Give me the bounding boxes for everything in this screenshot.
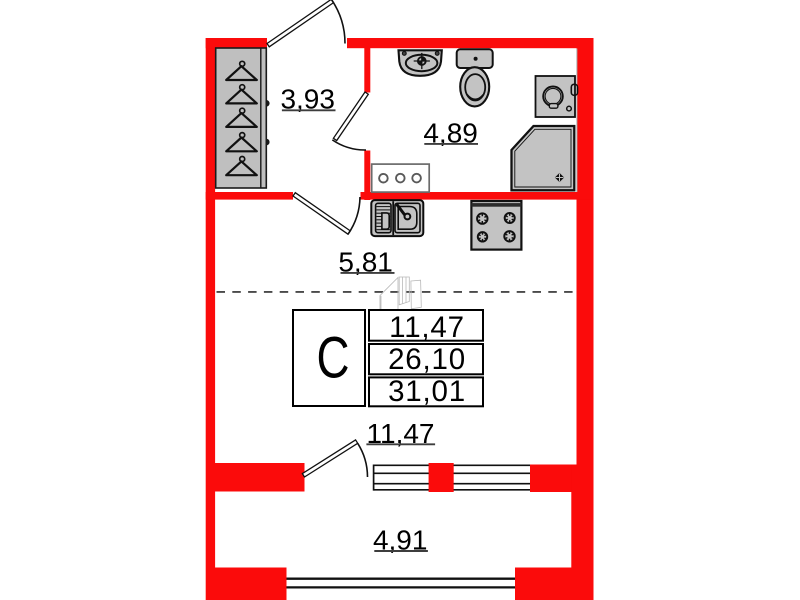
svg-text:С: С (317, 326, 350, 391)
svg-text:11,47: 11,47 (389, 311, 465, 344)
svg-text:26,10: 26,10 (388, 343, 466, 376)
svg-text:31,01: 31,01 (388, 375, 466, 408)
